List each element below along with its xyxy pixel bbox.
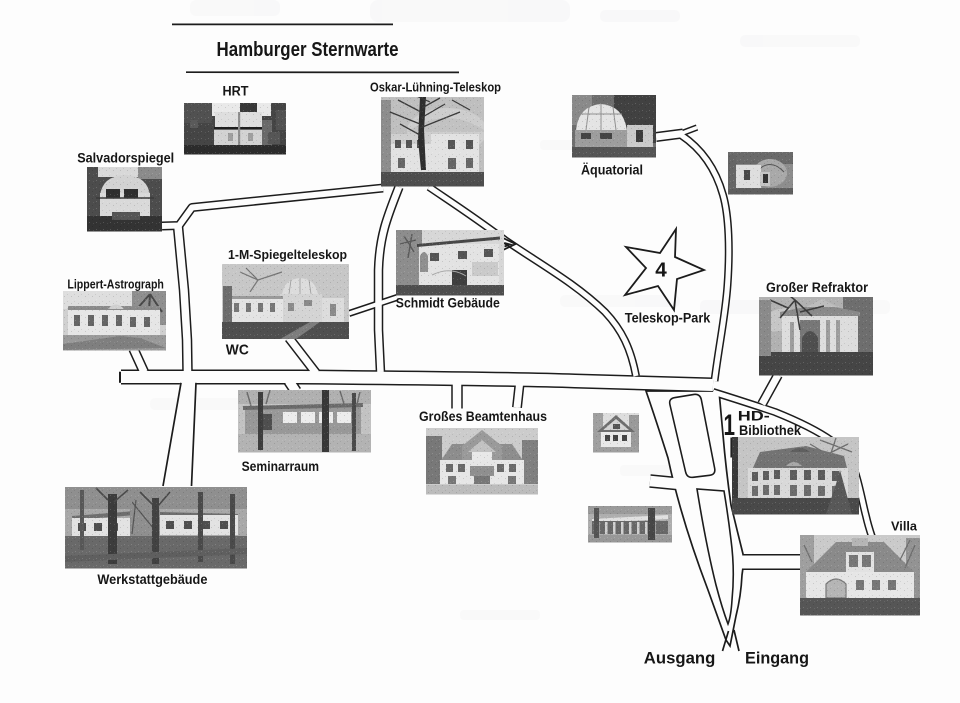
svg-text:Ausgang: Ausgang <box>644 648 716 667</box>
svg-text:Salvadorspiegel: Salvadorspiegel <box>77 151 174 166</box>
svg-text:Schmidt Gebäude: Schmidt Gebäude <box>396 295 500 310</box>
svg-text:Seminarraum: Seminarraum <box>242 459 320 474</box>
svg-text:Hamburger Sternwarte: Hamburger Sternwarte <box>217 38 399 61</box>
svg-text:Eingang: Eingang <box>745 648 809 667</box>
svg-text:1-M-Spiegelteleskop: 1-M-Spiegelteleskop <box>228 247 347 262</box>
svg-text:Villa: Villa <box>891 519 918 534</box>
svg-text:1: 1 <box>724 409 736 442</box>
svg-text:Großes Beamtenhaus: Großes Beamtenhaus <box>419 409 547 424</box>
svg-text:Äquatorial: Äquatorial <box>581 163 643 178</box>
svg-text:Bibliothek: Bibliothek <box>739 422 801 438</box>
svg-text:Teleskop-Park: Teleskop-Park <box>625 311 711 326</box>
svg-text:WC: WC <box>226 343 249 359</box>
svg-text:Werkstattgebäude: Werkstattgebäude <box>97 572 207 587</box>
svg-text:4: 4 <box>655 259 667 282</box>
svg-text:HRT: HRT <box>223 84 250 99</box>
svg-text:Lippert-Astrograph: Lippert-Astrograph <box>67 277 163 291</box>
svg-text:Oskar-Lühning-Teleskop: Oskar-Lühning-Teleskop <box>370 81 501 95</box>
svg-text:Großer Refraktor: Großer Refraktor <box>766 280 869 295</box>
